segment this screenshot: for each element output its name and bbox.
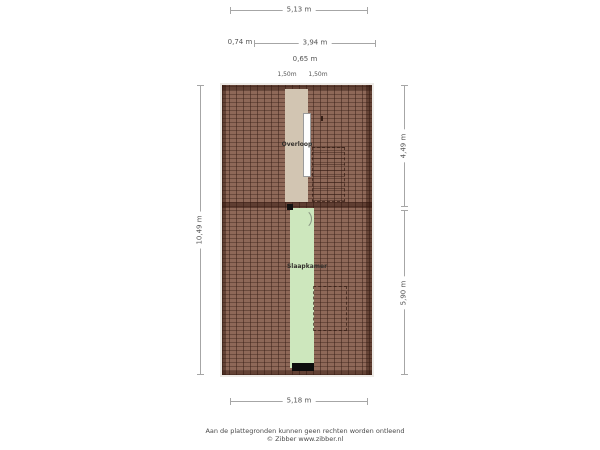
dimension-label: 3,94 m <box>299 39 332 48</box>
dimension-label: 5,13 m <box>283 6 316 15</box>
dimension-tick <box>375 40 376 47</box>
dimension-tick <box>401 206 408 207</box>
headroom-label-right: 1,50m <box>303 71 333 78</box>
dimension-label: 5,90 m <box>400 276 409 309</box>
door-marker <box>287 204 293 210</box>
dimension-top-total: 5,13 m <box>230 4 368 16</box>
dimension-bottom-total: 5,18 m <box>230 395 368 407</box>
dormer-dashed-outline <box>313 286 347 331</box>
floorplan-page: 5,13 m 0,74 m 3,94 m 0,65 m 1,50m 1,50m … <box>0 0 600 450</box>
dimension-tick <box>401 210 408 211</box>
staircase-dashed-outline <box>312 147 345 202</box>
dimension-tick <box>230 7 231 14</box>
dimension-top-segment-right: 3,94 m <box>254 37 376 49</box>
window-bottom <box>292 363 314 371</box>
dimension-right-lower: 5,90 m <box>398 210 410 375</box>
footer-disclaimer: Aan de plattegronden kunnen geen rechten… <box>145 427 465 435</box>
dimension-label: 4,49 m <box>400 130 409 163</box>
dimension-tick <box>230 398 231 405</box>
dimension-tick <box>401 374 408 375</box>
footer: Aan de plattegronden kunnen geen rechten… <box>145 427 465 443</box>
dimension-tick <box>197 85 204 86</box>
dimension-right-upper: 4,49 m <box>398 85 410 207</box>
dimension-tick <box>367 7 368 14</box>
dimension-tick <box>367 398 368 405</box>
room-bedroom-floor <box>290 208 314 368</box>
room-label-bedroom: Slaapkamer <box>284 263 330 270</box>
roof-edge-left <box>222 85 226 375</box>
door-swing-arc <box>292 209 312 229</box>
dimension-tick <box>254 40 255 47</box>
footer-credit: © Zibber www.zibber.nl <box>145 435 465 443</box>
dimension-label-segment-left: 0,74 m <box>226 38 254 46</box>
room-label-landing: Overloop <box>278 141 316 148</box>
roof-edge-right <box>366 85 372 375</box>
dimension-left-total: 10,49 m <box>194 85 206 375</box>
dimension-tick <box>197 374 204 375</box>
dimension-label: 10,49 m <box>196 211 205 248</box>
stair-start-marker <box>321 116 323 121</box>
roof-edge-bottom <box>222 371 372 375</box>
floor-plan: Overloop Slaapkamer <box>222 85 372 375</box>
dimension-label: 5,18 m <box>283 397 316 406</box>
dimension-label-offset: 0,65 m <box>287 55 323 63</box>
dimension-tick <box>401 85 408 86</box>
headroom-label-left: 1,50m <box>272 71 302 78</box>
